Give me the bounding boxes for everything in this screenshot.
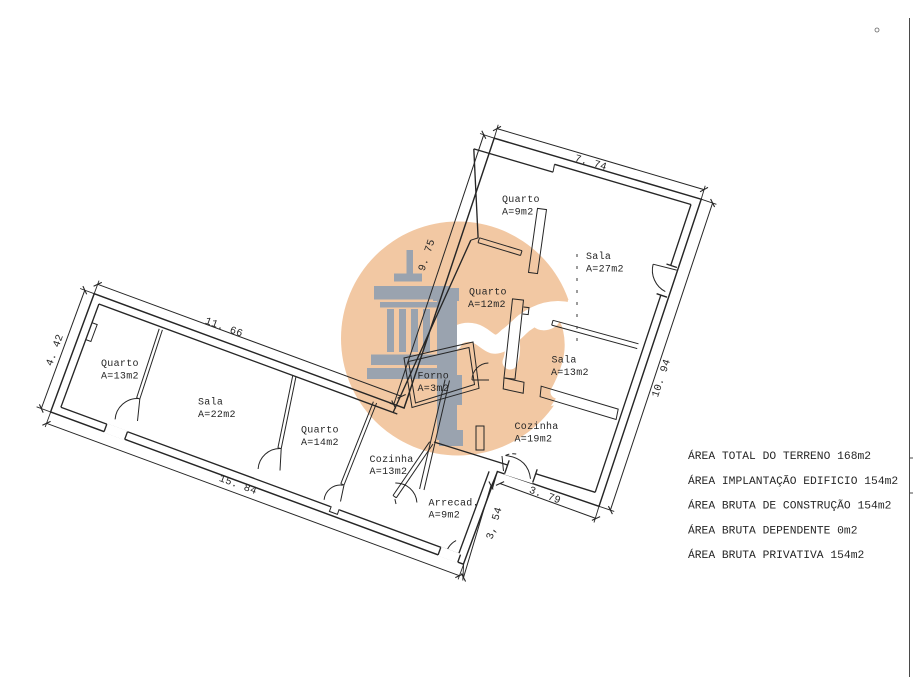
svg-text:Cozinha: Cozinha bbox=[370, 454, 414, 466]
svg-text:Arrecad.: Arrecad. bbox=[429, 498, 479, 510]
svg-text:A=14m2: A=14m2 bbox=[301, 438, 339, 449]
svg-text:A=12m2: A=12m2 bbox=[468, 300, 506, 311]
svg-text:A=19m2: A=19m2 bbox=[515, 435, 553, 446]
svg-text:A=27m2: A=27m2 bbox=[586, 265, 624, 276]
svg-text:Quarto: Quarto bbox=[101, 359, 139, 370]
svg-text:A=13m2: A=13m2 bbox=[370, 467, 408, 478]
svg-text:Quarto: Quarto bbox=[502, 195, 540, 206]
svg-text:A=22m2: A=22m2 bbox=[198, 410, 236, 421]
svg-text:Sala: Sala bbox=[198, 397, 223, 409]
svg-text:Quarto: Quarto bbox=[469, 288, 507, 299]
svg-text:A=13m2: A=13m2 bbox=[101, 372, 139, 383]
svg-text:Forno: Forno bbox=[418, 372, 450, 383]
svg-text:ÁREA BRUTA PRIVATIVA 154m2: ÁREA BRUTA PRIVATIVA 154m2 bbox=[688, 548, 864, 562]
svg-text:A=9m2: A=9m2 bbox=[502, 208, 534, 219]
svg-text:Sala: Sala bbox=[586, 251, 611, 263]
svg-text:A=3m2: A=3m2 bbox=[418, 384, 450, 395]
svg-text:4. 42: 4. 42 bbox=[44, 333, 67, 368]
svg-text:A=13m2: A=13m2 bbox=[551, 368, 589, 379]
svg-text:Quarto: Quarto bbox=[301, 426, 339, 437]
svg-text:A=9m2: A=9m2 bbox=[429, 511, 461, 522]
svg-text:ÁREA IMPLANTAÇÃO EDIFICIO 154m: ÁREA IMPLANTAÇÃO EDIFICIO 154m2 bbox=[688, 474, 898, 488]
svg-text:3, 54: 3, 54 bbox=[485, 506, 506, 541]
svg-text:ÁREA BRUTA DE CONSTRUÇÃO 154m2: ÁREA BRUTA DE CONSTRUÇÃO 154m2 bbox=[688, 499, 891, 513]
svg-text:Sala: Sala bbox=[552, 355, 577, 367]
svg-text:ÁREA BRUTA DEPENDENTE 0m2: ÁREA BRUTA DEPENDENTE 0m2 bbox=[688, 523, 857, 537]
svg-text:Cozinha: Cozinha bbox=[515, 421, 559, 433]
svg-text:ÁREA TOTAL DO TERRENO 168m2: ÁREA TOTAL DO TERRENO 168m2 bbox=[688, 449, 871, 463]
